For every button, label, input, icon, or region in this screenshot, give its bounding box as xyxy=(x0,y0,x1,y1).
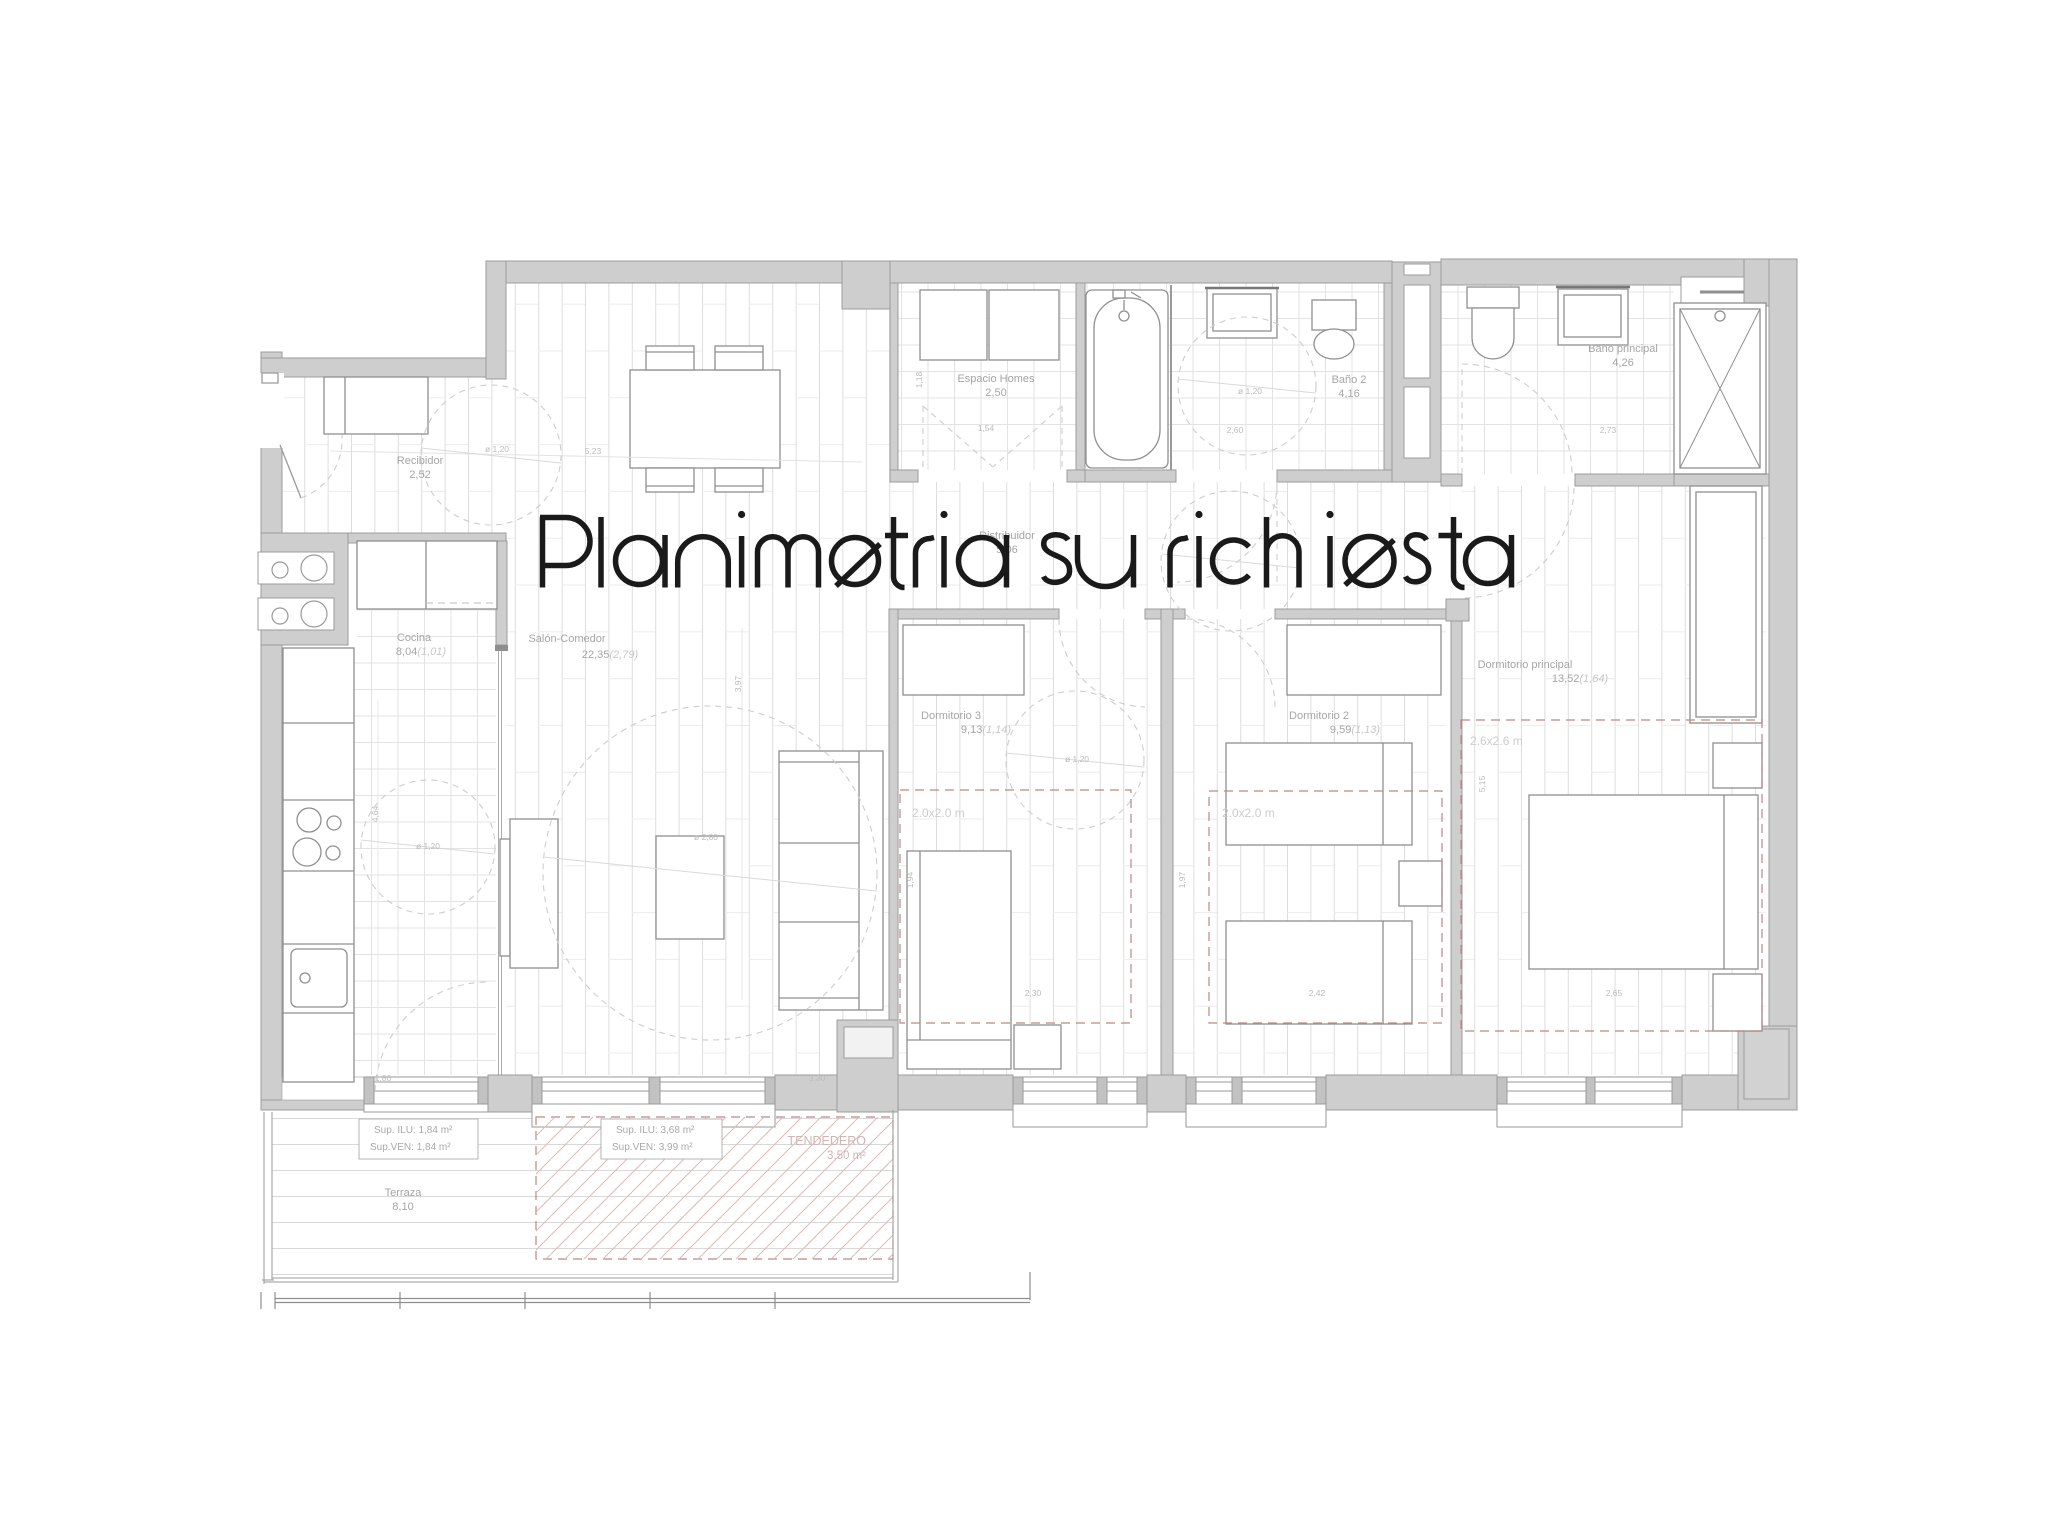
svg-text:2.0x2.0 m: 2.0x2.0 m xyxy=(912,806,965,820)
svg-text:2,60: 2,60 xyxy=(1227,425,1244,435)
svg-text:8,04(1,01): 8,04(1,01) xyxy=(396,646,446,658)
svg-text:4,26: 4,26 xyxy=(1612,357,1633,369)
svg-text:1,97: 1,97 xyxy=(1177,871,1187,888)
svg-text:Terraza: Terraza xyxy=(385,1187,423,1199)
svg-text:3,97: 3,97 xyxy=(733,675,743,692)
svg-text:Sup. ILU: 3,68 m²: Sup. ILU: 3,68 m² xyxy=(616,1125,695,1136)
svg-text:13,52(1,64): 13,52(1,64) xyxy=(1552,673,1609,685)
svg-text:ø 2,80: ø 2,80 xyxy=(694,832,718,842)
svg-text:1,18: 1,18 xyxy=(914,371,924,388)
svg-text:Cocina: Cocina xyxy=(397,632,432,644)
svg-text:ø 1,20: ø 1,20 xyxy=(1238,386,1262,396)
svg-text:Salón-Comedor: Salón-Comedor xyxy=(528,633,605,645)
svg-text:5,15: 5,15 xyxy=(1477,775,1487,792)
svg-text:2,30: 2,30 xyxy=(1025,988,1042,998)
svg-text:ø 1,20: ø 1,20 xyxy=(416,841,440,851)
svg-text:2.0x2.0 m: 2.0x2.0 m xyxy=(1222,806,1275,820)
svg-text:1,94: 1,94 xyxy=(905,871,915,888)
svg-text:Dormitorio principal: Dormitorio principal xyxy=(1478,659,1573,671)
svg-text:3,50 m²: 3,50 m² xyxy=(827,1150,866,1162)
svg-text:Sup.VEN: 3,99 m²: Sup.VEN: 3,99 m² xyxy=(612,1142,693,1153)
svg-text:22,35(2,79): 22,35(2,79) xyxy=(582,649,639,661)
svg-text:9,59(1,13): 9,59(1,13) xyxy=(1330,724,1380,736)
svg-text:Baño principal: Baño principal xyxy=(1588,343,1658,355)
svg-text:2,50: 2,50 xyxy=(985,387,1006,399)
svg-text:2,73: 2,73 xyxy=(1600,425,1617,435)
svg-text:9,13(1,14): 9,13(1,14) xyxy=(961,724,1011,736)
svg-text:2,52: 2,52 xyxy=(409,469,430,481)
svg-text:Espacio Homes: Espacio Homes xyxy=(957,373,1035,385)
svg-text:Sup.VEN: 1,84 m²: Sup.VEN: 1,84 m² xyxy=(370,1142,451,1153)
svg-text:1,86: 1,86 xyxy=(375,1073,392,1083)
svg-text:1,54: 1,54 xyxy=(978,423,995,433)
svg-text:5,23: 5,23 xyxy=(585,446,602,456)
svg-text:2,65: 2,65 xyxy=(1606,988,1623,998)
svg-text:Baño 2: Baño 2 xyxy=(1332,374,1367,386)
svg-text:4,64: 4,64 xyxy=(370,805,380,822)
svg-text:Dormitorio 3: Dormitorio 3 xyxy=(921,710,981,722)
svg-text:2,42: 2,42 xyxy=(1309,988,1326,998)
svg-text:Dormitorio 2: Dormitorio 2 xyxy=(1289,710,1349,722)
svg-text:2.6x2.6 m: 2.6x2.6 m xyxy=(1470,734,1523,748)
svg-text:Sup. ILU: 1,84 m²: Sup. ILU: 1,84 m² xyxy=(374,1125,453,1136)
svg-text:Recibidor: Recibidor xyxy=(397,455,444,467)
svg-text:ø 1,20: ø 1,20 xyxy=(1065,754,1089,764)
svg-text:3,30: 3,30 xyxy=(809,1073,826,1083)
svg-text:4,16: 4,16 xyxy=(1338,388,1359,400)
svg-text:ø 1,20: ø 1,20 xyxy=(485,444,509,454)
svg-text:8,10: 8,10 xyxy=(392,1201,413,1213)
svg-text:TENDEDERO: TENDEDERO xyxy=(788,1134,867,1148)
